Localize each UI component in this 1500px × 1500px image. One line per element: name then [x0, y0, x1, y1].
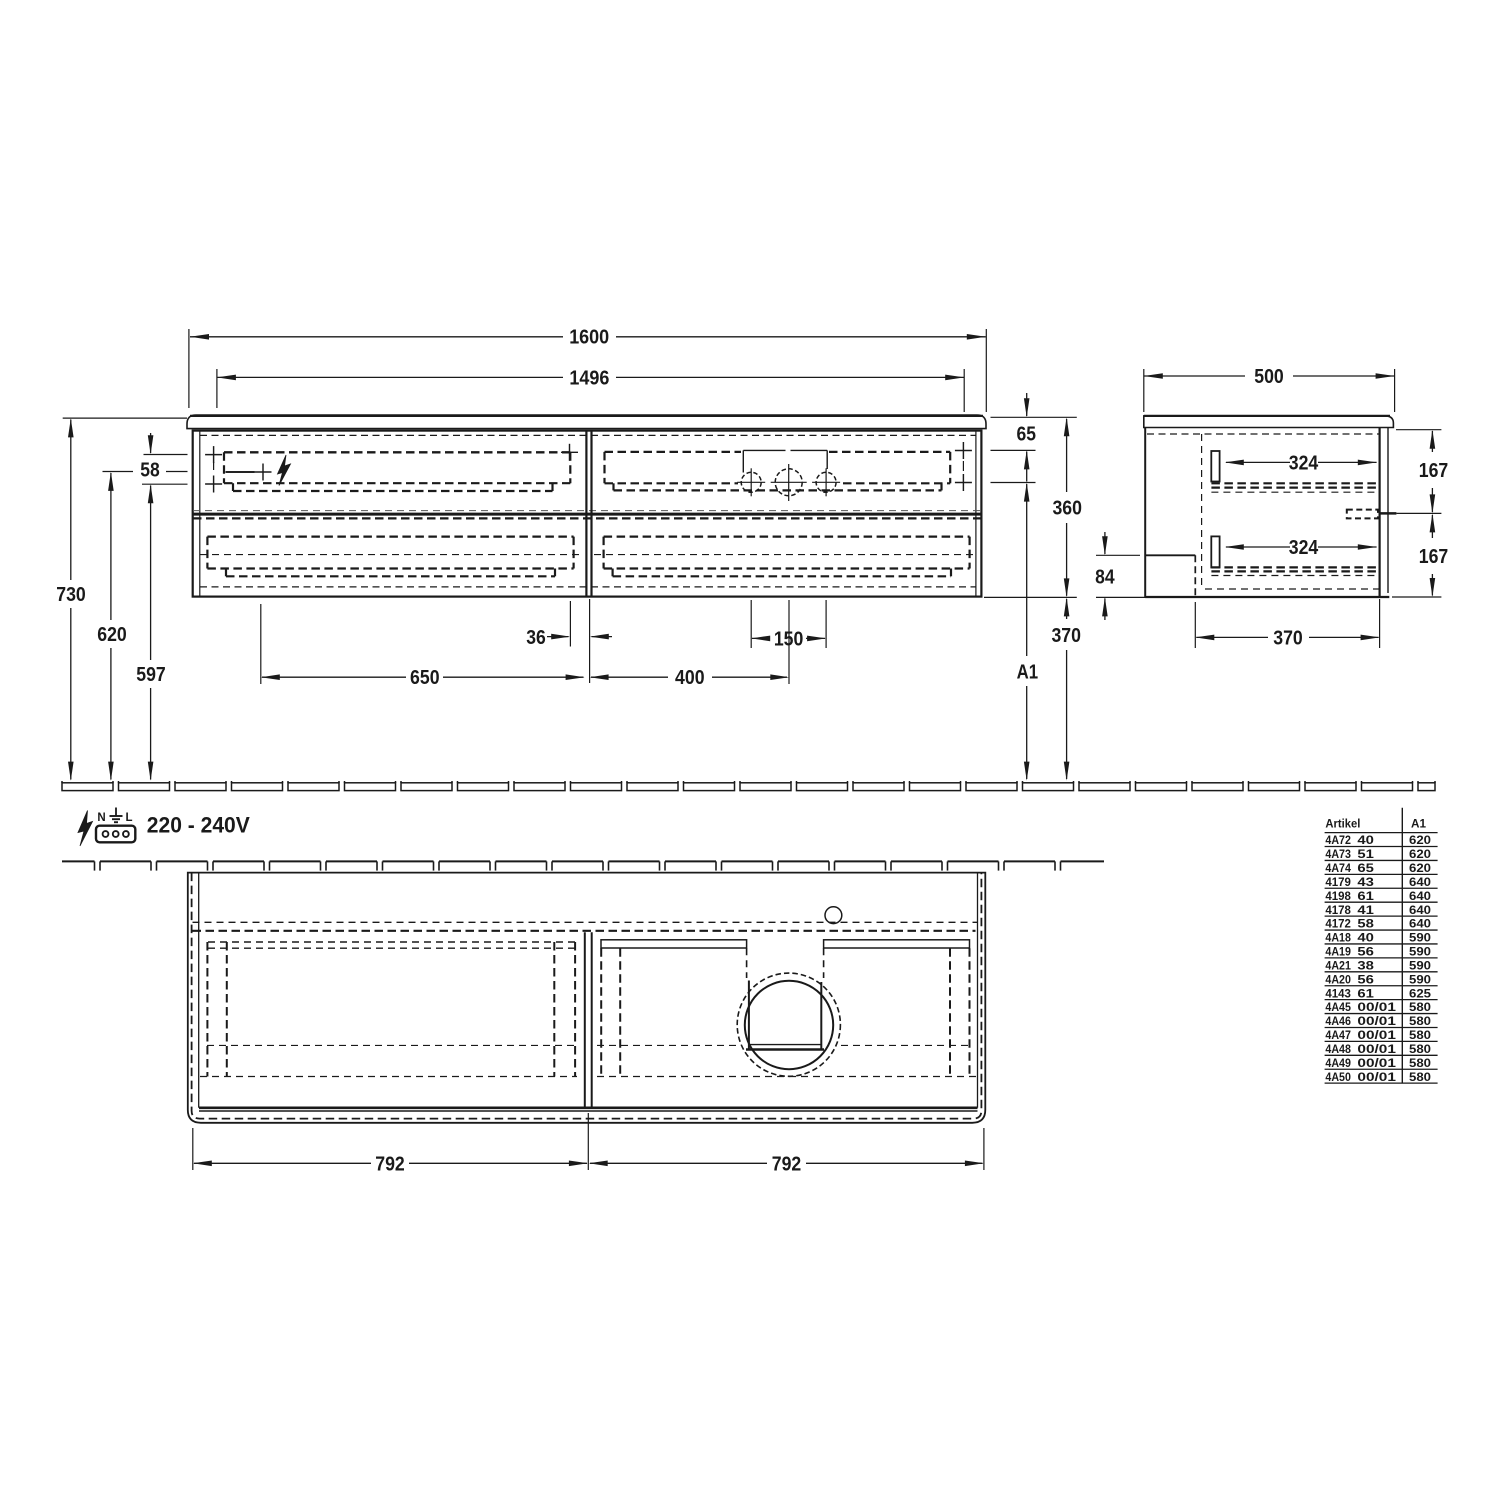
svg-text:597: 597 — [136, 664, 166, 686]
svg-text:220 - 240V: 220 - 240V — [147, 813, 250, 838]
svg-text:4A47: 4A47 — [1325, 1028, 1351, 1042]
svg-text:580: 580 — [1409, 1014, 1431, 1028]
svg-text:84: 84 — [1095, 567, 1115, 589]
svg-text:58: 58 — [140, 460, 160, 482]
svg-text:4A50: 4A50 — [1325, 1070, 1351, 1084]
svg-text:65: 65 — [1017, 424, 1037, 446]
svg-text:4A73: 4A73 — [1325, 847, 1351, 861]
svg-text:61: 61 — [1357, 986, 1374, 1000]
svg-text:4A19: 4A19 — [1325, 945, 1351, 959]
svg-text:620: 620 — [97, 624, 127, 646]
svg-text:56: 56 — [1357, 945, 1374, 959]
svg-text:41: 41 — [1357, 903, 1374, 917]
svg-text:650: 650 — [410, 667, 440, 689]
svg-text:640: 640 — [1409, 917, 1431, 931]
svg-text:1600: 1600 — [569, 327, 609, 349]
svg-text:370: 370 — [1273, 627, 1303, 649]
svg-text:620: 620 — [1409, 861, 1431, 875]
svg-text:324: 324 — [1289, 537, 1319, 559]
svg-text:36: 36 — [526, 627, 546, 649]
svg-text:500: 500 — [1254, 366, 1284, 388]
svg-text:620: 620 — [1409, 847, 1431, 861]
svg-text:370: 370 — [1051, 625, 1081, 647]
svg-text:Artikel: Artikel — [1325, 817, 1360, 831]
svg-text:590: 590 — [1409, 972, 1431, 986]
svg-text:792: 792 — [772, 1153, 802, 1175]
svg-text:590: 590 — [1409, 945, 1431, 959]
svg-text:61: 61 — [1357, 889, 1374, 903]
svg-text:40: 40 — [1357, 931, 1374, 945]
svg-text:A1: A1 — [1017, 662, 1039, 684]
svg-text:590: 590 — [1409, 931, 1431, 945]
svg-text:4A20: 4A20 — [1325, 972, 1351, 986]
svg-text:640: 640 — [1409, 875, 1431, 889]
svg-text:620: 620 — [1409, 833, 1431, 847]
svg-text:640: 640 — [1409, 889, 1431, 903]
svg-text:43: 43 — [1357, 875, 1374, 889]
svg-text:1496: 1496 — [569, 367, 609, 389]
svg-text:L: L — [125, 812, 132, 824]
svg-text:4179: 4179 — [1325, 875, 1351, 889]
svg-text:167: 167 — [1419, 546, 1449, 568]
svg-text:4198: 4198 — [1325, 889, 1351, 903]
svg-text:590: 590 — [1409, 958, 1431, 972]
svg-text:58: 58 — [1357, 917, 1374, 931]
svg-text:40: 40 — [1357, 833, 1374, 847]
svg-text:A1: A1 — [1411, 817, 1426, 831]
svg-text:580: 580 — [1409, 1000, 1431, 1014]
svg-text:4143: 4143 — [1325, 986, 1351, 1000]
svg-text:4A74: 4A74 — [1325, 861, 1351, 875]
svg-text:580: 580 — [1409, 1042, 1431, 1056]
svg-text:00/01: 00/01 — [1357, 1042, 1396, 1056]
svg-text:792: 792 — [375, 1153, 405, 1175]
svg-text:00/01: 00/01 — [1357, 1014, 1396, 1028]
svg-text:167: 167 — [1419, 460, 1449, 482]
svg-text:4A72: 4A72 — [1325, 833, 1351, 847]
svg-text:360: 360 — [1052, 498, 1082, 520]
svg-text:580: 580 — [1409, 1070, 1431, 1084]
svg-text:00/01: 00/01 — [1357, 1028, 1396, 1042]
svg-text:580: 580 — [1409, 1028, 1431, 1042]
svg-text:56: 56 — [1357, 972, 1374, 986]
svg-text:150: 150 — [774, 628, 804, 650]
svg-text:4172: 4172 — [1325, 917, 1351, 931]
svg-text:4A45: 4A45 — [1325, 1000, 1351, 1014]
svg-text:65: 65 — [1357, 861, 1374, 875]
svg-text:00/01: 00/01 — [1357, 1000, 1396, 1014]
svg-text:51: 51 — [1357, 847, 1374, 861]
svg-text:625: 625 — [1409, 986, 1431, 1000]
svg-text:38: 38 — [1357, 958, 1374, 972]
svg-text:N: N — [97, 812, 105, 824]
svg-text:4178: 4178 — [1325, 903, 1351, 917]
svg-text:640: 640 — [1409, 903, 1431, 917]
svg-text:580: 580 — [1409, 1056, 1431, 1070]
svg-text:730: 730 — [56, 584, 86, 606]
svg-text:4A21: 4A21 — [1325, 958, 1351, 972]
svg-text:400: 400 — [675, 667, 705, 689]
svg-text:00/01: 00/01 — [1357, 1056, 1396, 1070]
svg-text:00/01: 00/01 — [1357, 1070, 1396, 1084]
svg-text:4A46: 4A46 — [1325, 1014, 1351, 1028]
svg-text:4A49: 4A49 — [1325, 1056, 1351, 1070]
svg-text:4A18: 4A18 — [1325, 931, 1351, 945]
svg-text:4A48: 4A48 — [1325, 1042, 1351, 1056]
svg-text:324: 324 — [1289, 452, 1319, 474]
